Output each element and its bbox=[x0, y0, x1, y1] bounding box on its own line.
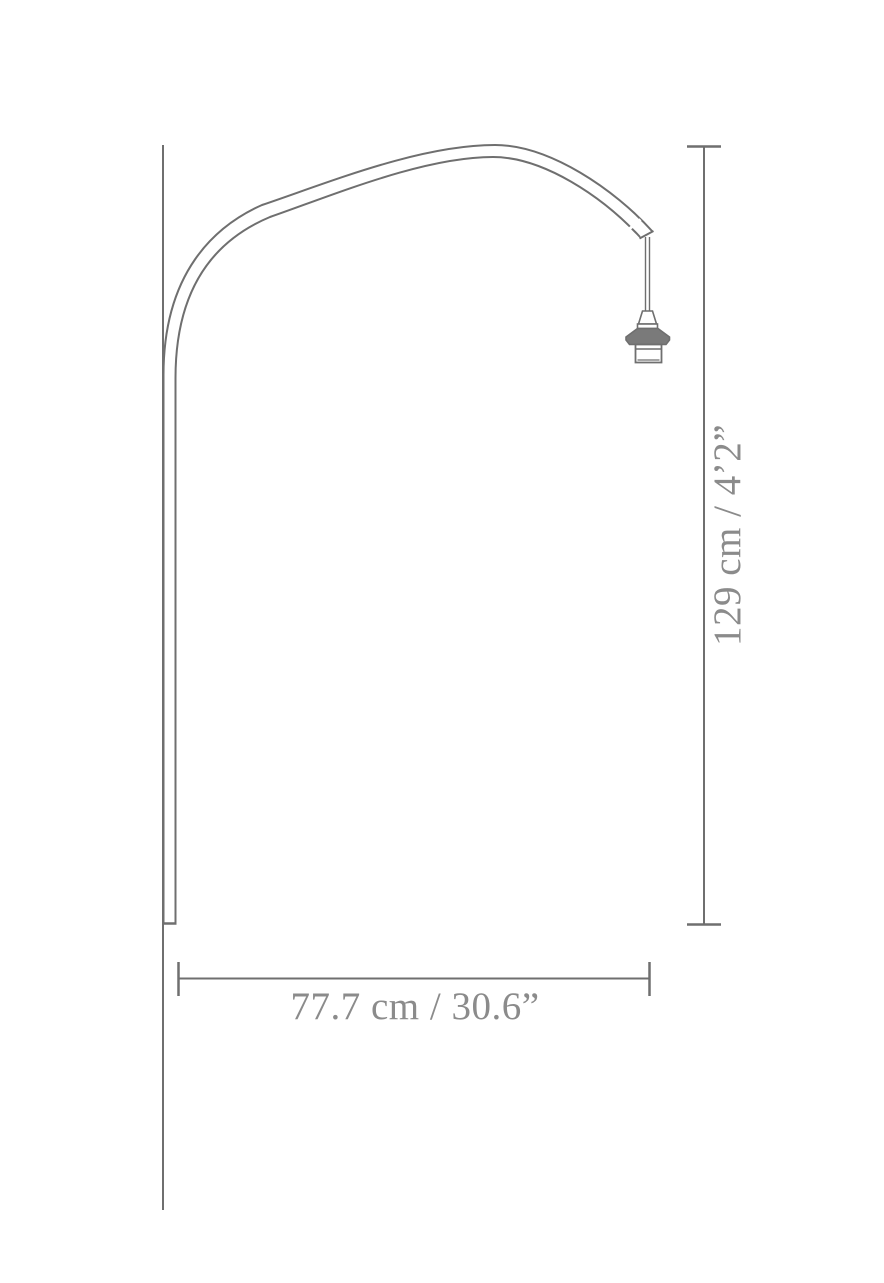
lamp-arm-end-cap bbox=[640, 231, 654, 239]
lamp-socket bbox=[626, 311, 670, 363]
width-dimension-label: 77.7 cm / 30.6” bbox=[165, 983, 665, 1031]
lamp-arm-inner-edge bbox=[176, 157, 641, 924]
socket-strain-relief-cone bbox=[639, 311, 657, 324]
lamp-arm-outer-edge bbox=[164, 145, 653, 924]
pendant-cord bbox=[646, 237, 650, 311]
dimension-drawing-canvas: 129 cm / 4’2” 77.7 cm / 30.6” bbox=[0, 0, 884, 1283]
height-dimension-label: 129 cm / 4’2” bbox=[704, 424, 752, 646]
socket-dome-flange bbox=[626, 329, 670, 345]
